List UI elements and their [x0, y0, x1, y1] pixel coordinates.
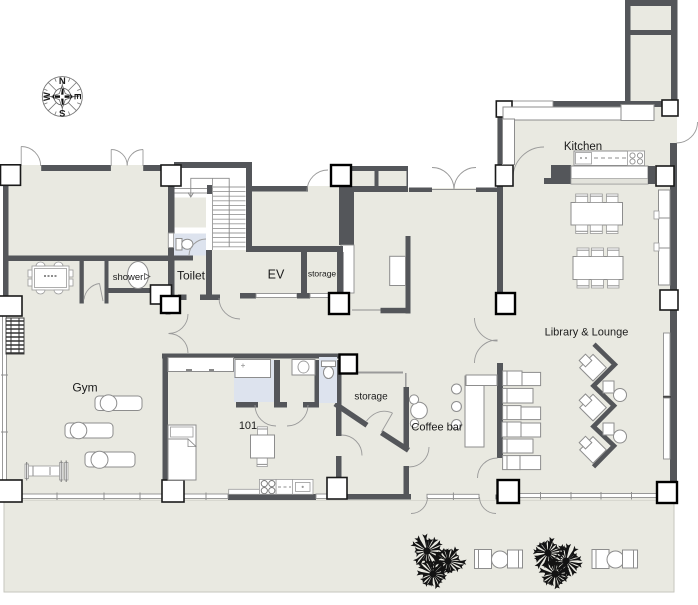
svg-text:Library & Lounge: Library & Lounge [545, 327, 629, 339]
svg-text:E: E [72, 93, 83, 99]
svg-text:Toilet: Toilet [177, 269, 206, 283]
svg-text:N: N [59, 76, 66, 87]
svg-text:storage: storage [308, 269, 337, 279]
svg-text:101: 101 [239, 420, 257, 432]
svg-text:W: W [42, 92, 53, 101]
svg-text:Coffee bar: Coffee bar [411, 422, 463, 434]
svg-text:EV: EV [268, 268, 285, 282]
svg-text:Gym: Gym [72, 381, 97, 395]
svg-text:shower: shower [113, 272, 144, 283]
svg-text:storage: storage [354, 392, 388, 403]
svg-text:S: S [59, 107, 65, 118]
svg-text:Kitchen: Kitchen [564, 141, 602, 153]
